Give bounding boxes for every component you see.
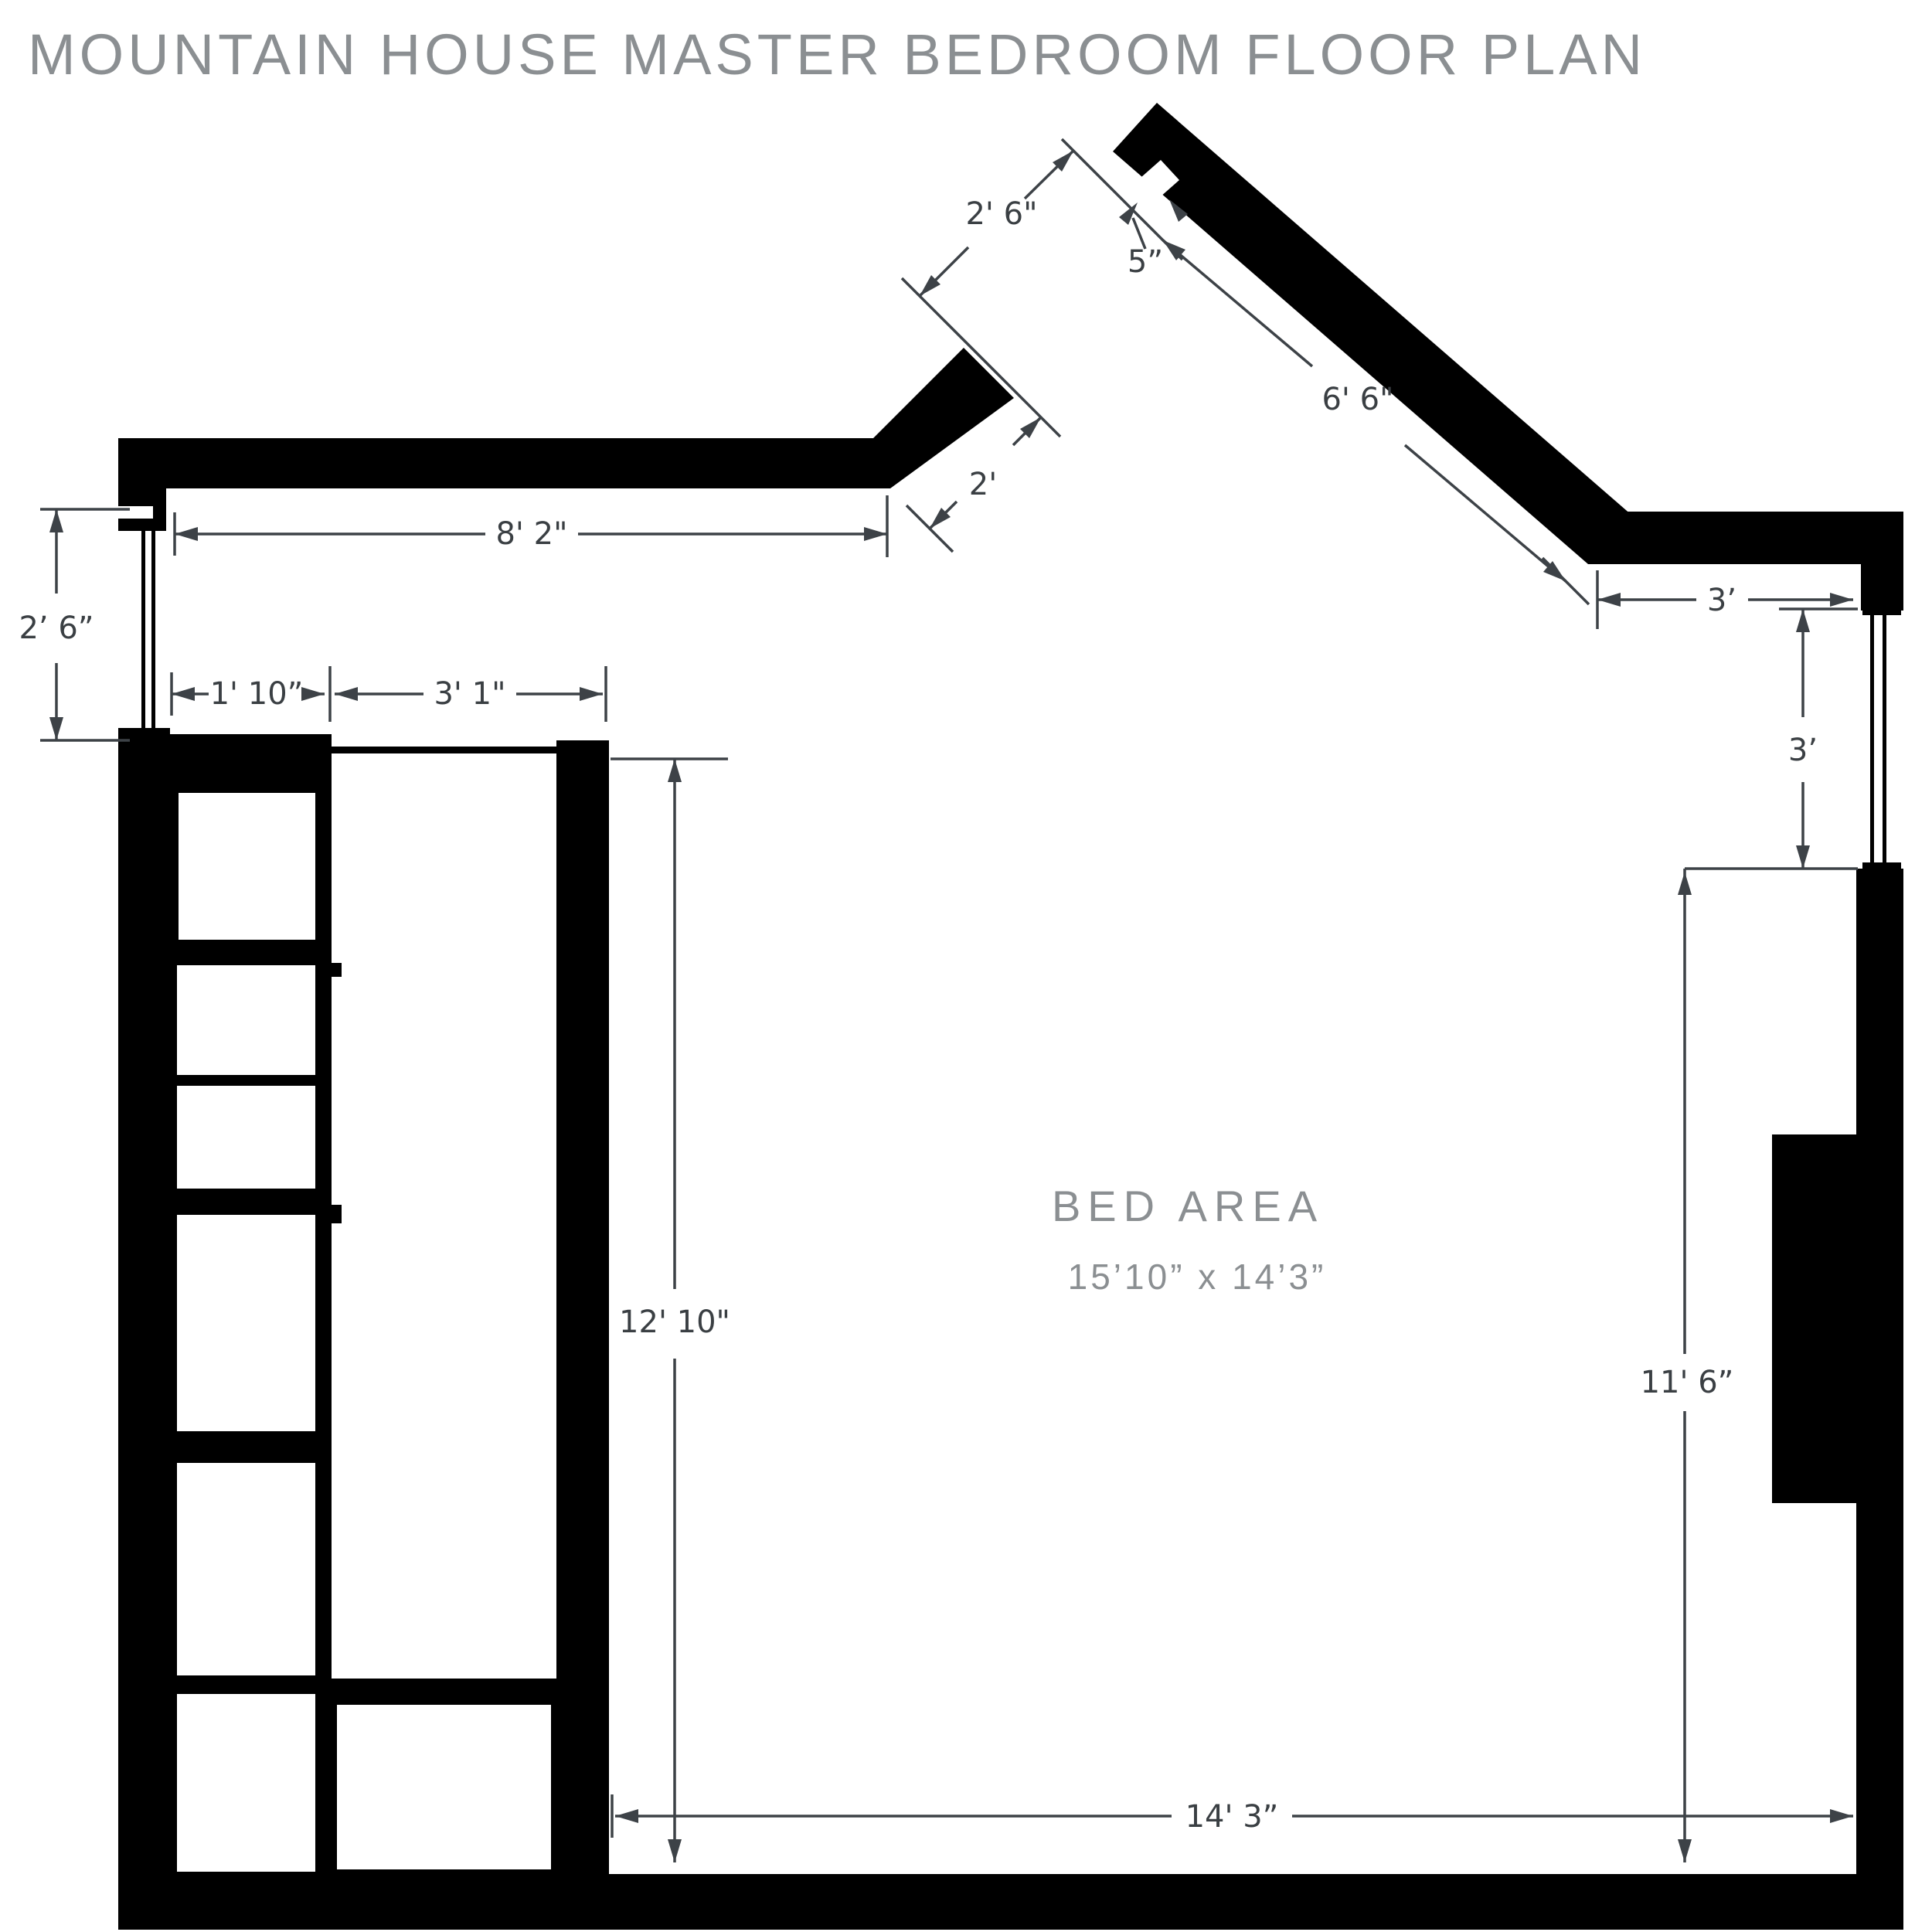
room-name: BED AREA bbox=[1052, 1182, 1324, 1230]
dim-label: 2’ 6” bbox=[19, 611, 94, 646]
window-right-glass-line-1 bbox=[1870, 615, 1874, 864]
dim-label: 2' bbox=[969, 467, 997, 502]
dim-label: 5” bbox=[1128, 244, 1163, 280]
shelf-compartment bbox=[177, 1463, 315, 1675]
dim-window-right: 3’ bbox=[1779, 609, 1858, 869]
dim-wall-notch: 5” bbox=[1119, 199, 1188, 280]
room-label: BED AREA 15’10” x 14’3” bbox=[1052, 1182, 1326, 1297]
closet-partition-wall bbox=[556, 740, 609, 1874]
wall-diagonal bbox=[1113, 103, 1632, 564]
wall-top-right bbox=[1588, 512, 1903, 564]
dim-label: 3’ bbox=[1707, 583, 1736, 618]
window-right-frame-bar-top bbox=[1862, 609, 1901, 615]
shelf-compartment bbox=[177, 1215, 315, 1431]
floor-plan-canvas: MOUNTAIN HOUSE MASTER BEDROOM FLOOR PLAN bbox=[0, 0, 1932, 1932]
wall-left bbox=[118, 728, 170, 1874]
window-left-glass-line-1 bbox=[141, 519, 145, 728]
dim-label: 1' 10” bbox=[210, 676, 304, 712]
dim-label: 3' 1" bbox=[434, 676, 505, 712]
dim-label: 11' 6” bbox=[1641, 1365, 1734, 1400]
closet-divider-nub bbox=[332, 1205, 342, 1223]
dim-top-wall: 8' 2" bbox=[175, 495, 887, 557]
wall-right bbox=[1856, 869, 1903, 1930]
closet-opening-header bbox=[332, 747, 556, 753]
floor-plan-page: MOUNTAIN HOUSE MASTER BEDROOM FLOOR PLAN bbox=[0, 0, 1932, 1932]
dim-window-left: 2’ 6” bbox=[19, 509, 130, 740]
closet-top-wall bbox=[118, 734, 332, 782]
dim-room-width: 14' 3” bbox=[612, 1794, 1853, 1838]
dim-label: 14' 3” bbox=[1185, 1799, 1279, 1835]
window-right-glass-line-2 bbox=[1883, 615, 1886, 864]
page-title: MOUNTAIN HOUSE MASTER BEDROOM FLOOR PLAN bbox=[28, 22, 1646, 87]
closet-divider-nub bbox=[332, 963, 342, 977]
dim-right-top: 3’ bbox=[1597, 570, 1853, 629]
shelf-compartment bbox=[179, 793, 315, 940]
dim-closet-height: 12' 10" bbox=[611, 759, 730, 1862]
wall-bottom bbox=[118, 1874, 1903, 1930]
window-right-frame-bar-bottom bbox=[1862, 862, 1901, 869]
fireplace-protrusion bbox=[1772, 1134, 1856, 1503]
dim-label: 2' 6" bbox=[965, 196, 1037, 232]
dim-label: 8' 2" bbox=[495, 516, 567, 552]
shelf-compartment bbox=[177, 1694, 315, 1872]
dim-shelf-depth: 1' 10” bbox=[172, 666, 330, 722]
wall-top bbox=[118, 348, 1014, 488]
window-right-top-cap bbox=[1861, 512, 1903, 611]
closet-cabinet-inner bbox=[337, 1705, 551, 1869]
walls bbox=[118, 103, 1903, 1930]
room-size: 15’10” x 14’3” bbox=[1068, 1257, 1327, 1297]
dim-label: 12' 10" bbox=[619, 1304, 730, 1340]
dim-label: 6' 6" bbox=[1321, 382, 1393, 417]
window-right bbox=[1859, 611, 1903, 869]
window-left-glass-line-2 bbox=[151, 519, 155, 728]
shelf-compartment bbox=[177, 965, 315, 1075]
dim-label: 3’ bbox=[1788, 733, 1818, 768]
dim-closet-opening: 3' 1" bbox=[335, 666, 606, 722]
shelf-compartment bbox=[177, 1086, 315, 1189]
